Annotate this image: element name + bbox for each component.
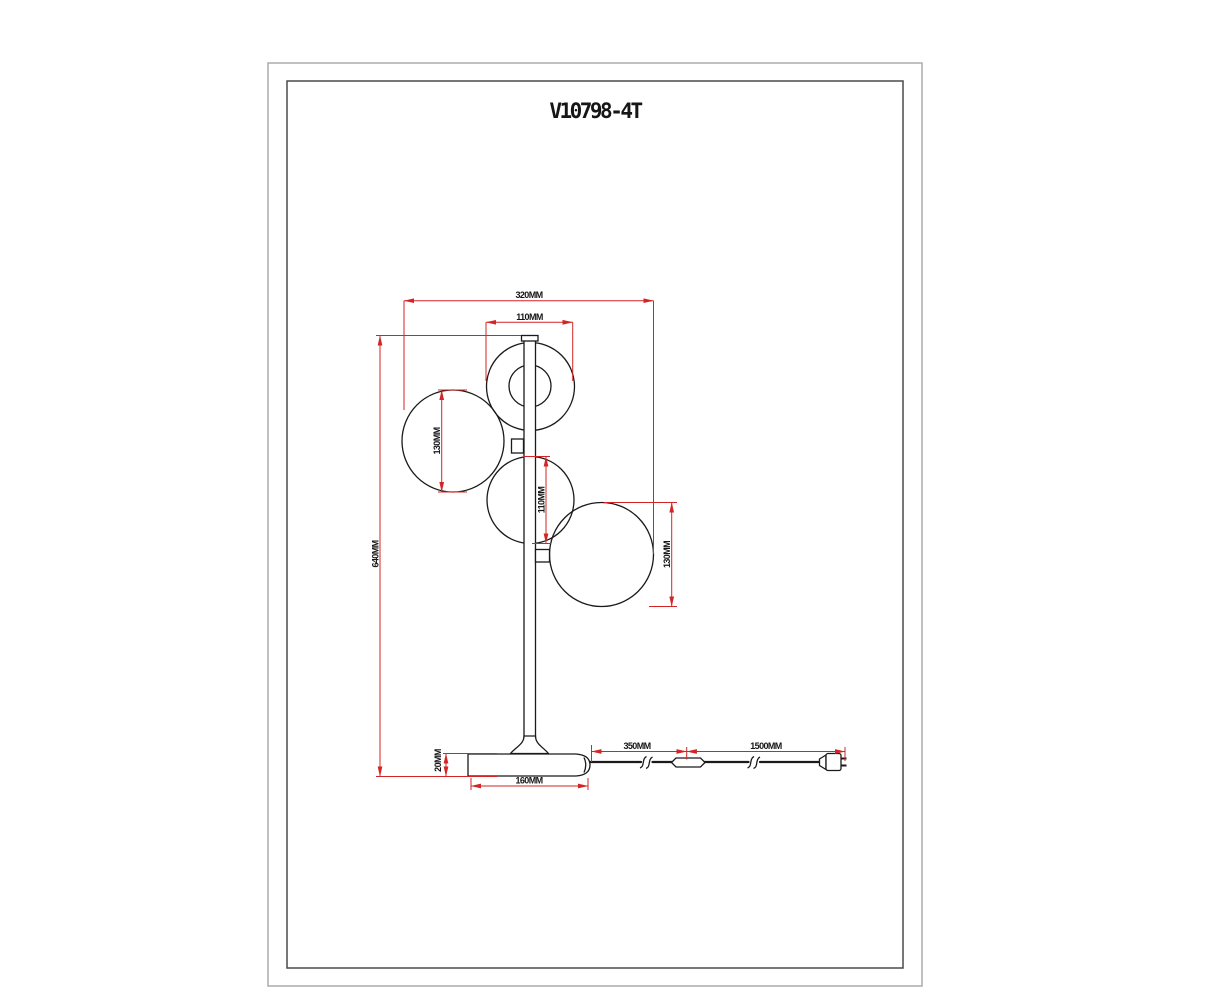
dim-middle-globe: 110MM bbox=[537, 457, 547, 544]
dim-right-globe: 130MM bbox=[662, 503, 672, 607]
dim-switch-to-plug: 1500MM bbox=[687, 741, 845, 752]
pole-foot-flare bbox=[511, 736, 549, 754]
lamp-pole-fill bbox=[524, 341, 536, 738]
dim-label-overall-height: 640MM bbox=[371, 540, 381, 567]
dimension-annotations: 320MM 110MM 640MM 130MM 110MM 130MM bbox=[371, 290, 846, 790]
dim-cord-to-switch: 350MM bbox=[592, 741, 687, 752]
extension-lines bbox=[376, 301, 845, 790]
drawing-sheet: V10798-4T bbox=[0, 0, 1223, 1000]
dim-label-overall-width: 320MM bbox=[515, 290, 542, 300]
dim-label-cord-to-switch: 350MM bbox=[623, 741, 650, 751]
drawing-title: V10798-4T bbox=[549, 99, 642, 123]
dim-label-right-globe: 130MM bbox=[662, 541, 672, 568]
cord-switch bbox=[672, 758, 706, 767]
dim-label-base-width: 160MM bbox=[515, 776, 542, 786]
dim-label-switch-to-plug: 1500MM bbox=[750, 741, 782, 751]
globe-left bbox=[402, 390, 504, 492]
dim-base-width: 160MM bbox=[471, 776, 588, 787]
pole-top-cap bbox=[522, 336, 539, 342]
globe-right bbox=[550, 503, 654, 607]
dim-label-middle-globe: 110MM bbox=[537, 487, 547, 514]
lamp-drawing bbox=[402, 336, 847, 777]
dim-label-left-globe: 130MM bbox=[432, 427, 442, 454]
right-globe-connector bbox=[536, 550, 550, 563]
left-globe-connector bbox=[512, 439, 524, 453]
plug-strain-relief bbox=[820, 755, 827, 770]
dim-left-globe: 130MM bbox=[432, 390, 442, 492]
dim-top-globe-width: 110MM bbox=[486, 312, 573, 322]
power-plug bbox=[820, 754, 847, 771]
lamp-base bbox=[468, 754, 590, 776]
plug-body bbox=[826, 754, 841, 771]
dim-label-top-globe-width: 110MM bbox=[516, 312, 543, 322]
inner-frame bbox=[287, 81, 903, 968]
outer-frame bbox=[268, 63, 922, 986]
dim-label-base-thickness: 20MM bbox=[433, 749, 443, 772]
dim-overall-height: 640MM bbox=[371, 336, 381, 777]
dim-overall-width: 320MM bbox=[404, 290, 654, 301]
